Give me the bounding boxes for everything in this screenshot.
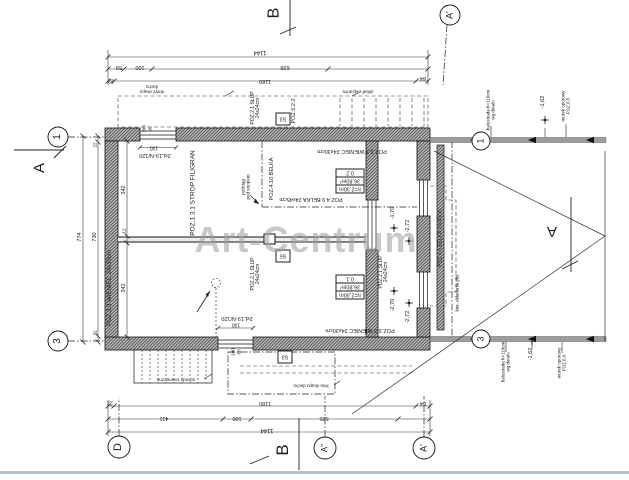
dim-opening-bottom-100: 100 — [232, 348, 237, 356]
poz522-label: POZ.5.2.2 — [292, 98, 298, 123]
room-0-2-area: 36,80m² — [337, 177, 364, 185]
axis-circle-1-left: 1 — [53, 134, 64, 140]
room-0-1-id: 0.1 — [337, 276, 364, 283]
room-label-0-2: h=2,30m 36,80m² 0.2 — [336, 169, 365, 194]
dim-opening-top-100: 100 — [143, 125, 148, 133]
podciag-label: podciąg pod stropem — [241, 174, 250, 199]
retaining-wall-bottom-label: murek oporowy POZ.6.5 — [557, 348, 566, 379]
beam-45-label: POZ.4.5 BELKA 24x45cm — [438, 209, 443, 267]
axis-circle-a-dbl: A'' — [321, 444, 329, 452]
lintel-top-label: 2xL19-N/120 — [139, 151, 171, 157]
balustrade-top-label: balustrada h=110cm wg detalu — [486, 90, 495, 131]
level-170: -1,70 — [391, 207, 397, 220]
dim-top-22: 22 — [108, 77, 114, 82]
page-bottom-edge — [0, 471, 629, 474]
section-a-right: A — [547, 223, 557, 239]
dim-bottom-22: 22 — [107, 399, 113, 404]
retaining-bottom-line2: POZ.6.5 — [562, 348, 567, 379]
axis-circle-a-prime-bottom: A' — [419, 444, 428, 452]
level-272b: -2,72 — [406, 311, 412, 324]
balustrade-bottom-line2: wg detalu — [506, 342, 511, 383]
podciag-line2: pod stropem — [246, 174, 251, 199]
dim-room-342a: 342 — [122, 185, 128, 194]
balustrade-bottom-label: balustrada h=110cm wg detalu — [501, 342, 510, 383]
dim-top-84: 84 — [420, 74, 426, 80]
room-0-2-id: 0.2 — [337, 170, 364, 177]
ringbeam-bottom-label: POZ.3.3 WIENIEC 24x30cm — [325, 326, 394, 332]
axis-circle-1-right: 1 — [476, 138, 485, 143]
section-a-left: A — [32, 163, 48, 173]
axis-circle-a-prime-top: A' — [445, 11, 454, 19]
level-162-bottom: -1,62 — [529, 348, 535, 361]
room-0-1-area: 36,80m² — [337, 283, 364, 291]
dim-wall-12: 12 — [123, 228, 128, 233]
column-top-label: POZ.2.1 SŁUP 24x24cm — [251, 91, 262, 124]
retaining-wall-top-label: murek oporowy POZ.6.5 — [561, 91, 570, 122]
dim-opening-top-60: 60 — [149, 126, 154, 131]
detail-pointer — [197, 279, 221, 338]
dim-bottom-525: 525 — [319, 414, 328, 420]
room-0-2-height: h=2,30m — [337, 185, 364, 193]
dim-bottom-100: 100 — [232, 414, 241, 420]
column-mid-line2: 24x24cm — [256, 257, 261, 290]
dim-top-100: 100 — [135, 63, 144, 69]
column-marker-s3-bottom: S3 — [278, 351, 293, 364]
dim-top-59: 59 — [116, 63, 122, 69]
room-0-1-height: h=2,30m — [337, 291, 364, 299]
axis-circle-3-left: 3 — [53, 338, 64, 344]
dim-opening-top-130: 130 — [150, 144, 158, 149]
level-162-top: -1,62 — [541, 96, 547, 109]
roof-eaves-top-label: obrys okapu dachu — [140, 84, 165, 93]
dim-top-628: 628 — [280, 63, 289, 69]
dim-bottom-411: 411 — [160, 414, 169, 420]
watermark: Art-Centrum — [195, 219, 418, 261]
axis-circle-3-right: 3 — [476, 336, 485, 341]
column-top-line2: 24x24cm — [256, 91, 261, 124]
dim-top-1180: 1180 — [259, 77, 271, 83]
beam-49-label: POZ.4.9 BELKA 24x45cm — [279, 195, 342, 201]
lintel-bottom-label: 2xL19-N/120 — [221, 314, 253, 320]
axis-circle-d: D — [113, 443, 125, 451]
panel-direction-label: kier. układania płyt — [456, 274, 461, 311]
dim-left-22t: 22 — [94, 142, 99, 147]
beam-410-label: POZ.4.10 BELKA — [270, 158, 276, 201]
roof-triangle — [352, 151, 605, 414]
retaining-top-line2: POZ.6.5 — [566, 91, 571, 122]
room-label-0-1: h=2,30m 36,80m² 0.1 — [336, 275, 365, 300]
eaves-bottom-label: linia okapu dachu — [293, 383, 328, 388]
dim-bottom-1180: 1180 — [259, 399, 271, 405]
level-270: -2,70 — [391, 299, 397, 312]
dim-left-774: 774 — [78, 232, 84, 241]
dim-bottom-total: 1144 — [261, 427, 274, 433]
column-marker-s3-top: S3 — [276, 113, 291, 126]
dim-opening-bottom-130: 130 — [232, 321, 240, 326]
dim-bottom-84: 84 — [420, 399, 426, 405]
ringbeam-top-label: POZ.3.3 WIENIEC 24x30cm — [317, 147, 386, 153]
dim-top-total: 1144 — [254, 49, 267, 55]
balustrade-top-line2: wg detalu — [491, 90, 496, 131]
dim-room-342b: 342 — [122, 283, 128, 292]
section-b-bottom: B — [274, 444, 292, 455]
dim-left-730: 730 — [93, 232, 99, 241]
dim-left-22b: 22 — [94, 330, 99, 335]
stairs-label: schody zewnętrzne — [157, 377, 196, 382]
ringbeam-left-label: POZ.3.3 WIENIEC 24x30cm — [107, 250, 113, 326]
dim-opening-bottom-60: 60 — [238, 349, 243, 354]
trusses-label: układ wiązarów — [343, 89, 374, 94]
column-mid-label: POZ.2.1 SŁUP 24x24cm — [251, 257, 262, 290]
cad-drawing-view: 1144 59 100 628 22 1180 84 22 1180 84 41… — [0, 0, 629, 480]
section-b-top: B — [267, 8, 284, 19]
